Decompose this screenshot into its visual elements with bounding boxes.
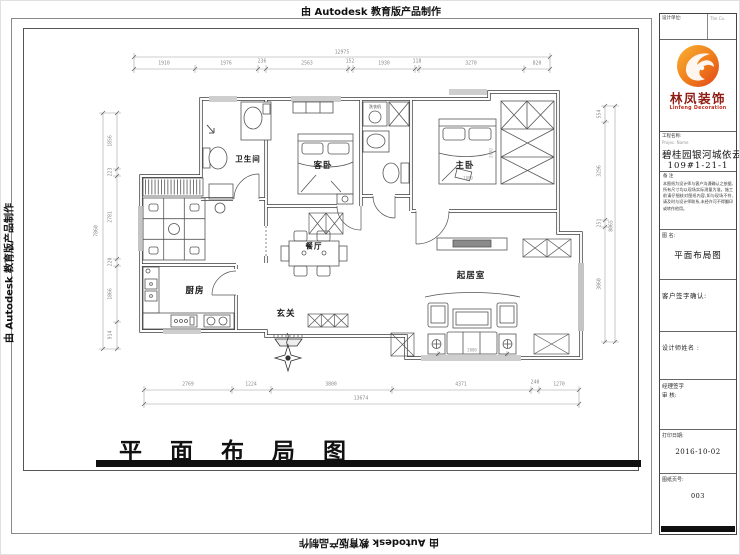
room-label-master-bedroom: 主卧 [455, 159, 474, 171]
autodesk-banner-left: 由 Autodesk 教育版产品制作 [1, 203, 16, 343]
dim-left-3: 2781 [109, 211, 114, 223]
dim-right-4: 3860 [598, 278, 603, 290]
company-name-cn: 林凤装饰 [660, 92, 736, 106]
entry-marker [275, 333, 302, 371]
dim-bottom-2: 1224 [245, 383, 257, 388]
dim-left-total: 7860 [95, 225, 100, 237]
dim-left-2: 223 [109, 168, 114, 177]
designer-sign-block: 设计师姓名 : [660, 332, 736, 380]
dim-bottom-6: 1270 [553, 383, 565, 388]
linfeng-logo-icon [676, 44, 720, 88]
dim-left-5: 1866 [109, 288, 114, 300]
sheet-number-label: 图纸页号: [662, 477, 734, 484]
design-unit-label: 设计单位: [662, 16, 706, 22]
dim-top-1: 1910 [158, 62, 170, 67]
dim-bottom-5: 240 [531, 381, 540, 386]
notes-label: 备 注 [663, 174, 733, 180]
company-logo-block: 林凤装饰 Linfeng Decoration [660, 40, 736, 132]
dimension-lines [99, 53, 619, 408]
dim-top-8: 3270 [465, 62, 477, 67]
manager-sign-block: 经理签字 审 核: [660, 380, 736, 430]
dim-sofa-width: 3800 [467, 348, 477, 353]
guest-bedroom-furniture [293, 102, 353, 204]
autodesk-banner-top: 由 Autodesk 教育版产品制作 [1, 3, 740, 18]
dim-bottom-4: 4371 [455, 383, 467, 388]
floor-plan-canvas [1, 1, 740, 555]
room-label-washing-machine: 洗衣机 [369, 104, 381, 110]
dim-top-7: 118 [413, 60, 422, 65]
dim-left-4: 220 [109, 258, 114, 267]
title-block-header-row: 设计单位: The Co. [660, 14, 736, 40]
room-label-kitchen: 厨房 [185, 284, 204, 296]
living-room-furniture [425, 238, 520, 354]
dim-bottom-3: 3800 [325, 383, 337, 388]
title-block: 设计单位: The Co. 林凤装饰 Linfeng Decoration [659, 13, 737, 535]
study-furniture [143, 178, 233, 260]
dim-right-3: 251 [598, 219, 603, 228]
dim-top-4: 2563 [301, 62, 313, 67]
room-label-dining: 餐厅 [306, 241, 323, 252]
master-bedroom-furniture [439, 101, 554, 184]
doors [212, 174, 449, 336]
drawing-sheet: 卫生间 客卧 主卧 厨房 餐厅 玄关 起居室 洗衣机 12975 1910 19… [0, 0, 740, 555]
dim-bed-length: 2000 [489, 148, 494, 158]
room-label-entry: 玄关 [276, 307, 295, 319]
customer-sign-label: 客户签字确认: [662, 292, 707, 300]
title-underline-bar [96, 460, 641, 467]
print-date-block: 打印日期: 2016-10-02 [660, 430, 736, 474]
room-label-guest-bedroom: 客卧 [313, 159, 332, 171]
notes-block: 备 注 本图纸为设计师与客户沟通确认之依据,所有尺寸均以现场实际测量为准。施工前… [660, 172, 736, 230]
dim-left-1: 1856 [109, 135, 114, 147]
design-unit-value: The Co. [710, 16, 736, 21]
company-name-en: Linfeng Decoration [660, 106, 736, 111]
dim-top-total: 12975 [335, 51, 349, 56]
customer-sign-block: 客户签字确认: [660, 280, 736, 332]
sheet-number-block: 图纸页号: 003 [660, 474, 736, 524]
manager-sign-label: 经理签字 [662, 383, 734, 392]
kitchen-fixtures [143, 267, 234, 329]
title-block-bottom-bar [661, 526, 735, 532]
dim-bottom-1: 2769 [182, 383, 194, 388]
dim-top-2: 1976 [220, 62, 232, 67]
drawing-name-label: 图 名: [662, 233, 734, 240]
room-label-bathroom: 卫生间 [235, 154, 261, 165]
dim-right-total: 8065 [610, 220, 615, 232]
drawing-name-block: 图 名: 平面布局图 [660, 230, 736, 280]
room-label-living: 起居室 [457, 269, 486, 281]
dim-left-6: 914 [109, 331, 114, 340]
print-date-label: 打印日期: [662, 433, 734, 440]
master-bathroom-fixtures [363, 102, 409, 183]
project-label-en: Projec. Name [662, 140, 734, 145]
dim-bottom-total: 13674 [354, 397, 368, 402]
dim-top-5: 152 [346, 60, 355, 65]
dim-right-2: 3296 [598, 165, 603, 177]
sheet-number-value: 003 [662, 492, 734, 500]
print-date-value: 2016-10-02 [662, 448, 734, 456]
project-name-block: 工程名称: Projec. Name 碧桂园银河城依云 109#1-21-1 [660, 132, 736, 172]
autodesk-banner-bottom: 由 Autodesk 教育版产品制作 [299, 537, 439, 552]
notes-text: 本图纸为设计师与客户沟通确认之依据,所有尺寸均以现场实际测量为准。施工前请仔细核… [663, 181, 733, 212]
project-number: 109#1-21-1 [662, 161, 734, 171]
project-name: 碧桂园银河城依云 [662, 147, 734, 161]
dim-right-1: 554 [598, 110, 603, 119]
dim-top-9: 820 [533, 62, 542, 67]
dining-furniture [281, 231, 347, 276]
dim-bed-width: 1800 [463, 176, 473, 181]
drawing-name-value: 平面布局图 [662, 249, 734, 261]
dim-top-6: 1930 [378, 62, 390, 67]
designer-sign-label: 设计师姓名 : [662, 345, 699, 352]
review-label: 审 核: [662, 392, 734, 401]
dim-top-3: 236 [258, 60, 267, 65]
